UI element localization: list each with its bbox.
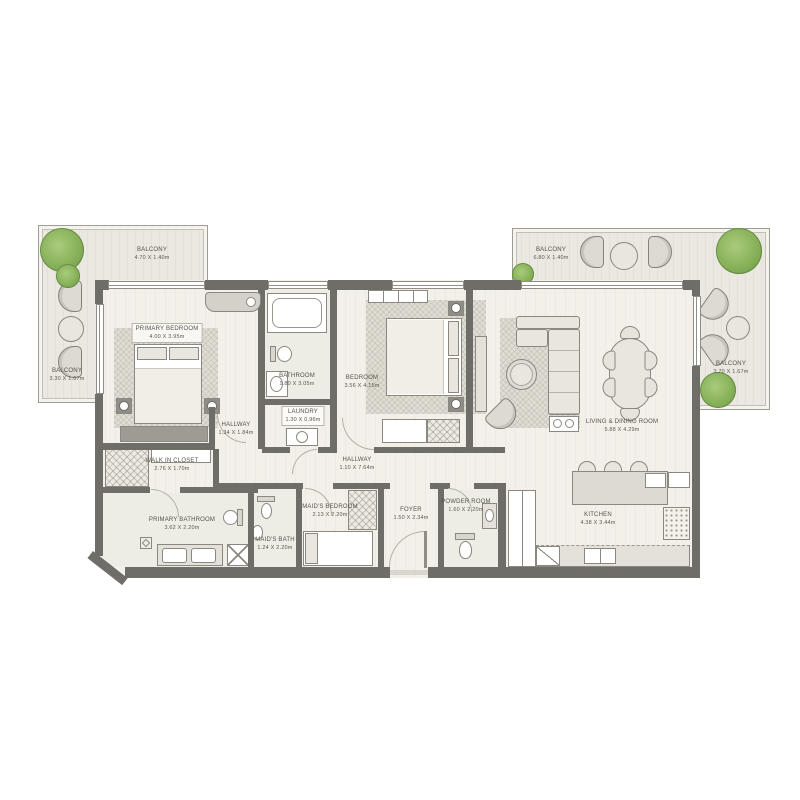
toilet-tank	[257, 496, 275, 502]
console-table	[475, 336, 487, 412]
toilet-icon	[277, 346, 292, 362]
wall	[213, 449, 219, 487]
wall-oven	[668, 472, 690, 488]
plant-icon	[553, 419, 562, 428]
sofa-icon	[548, 329, 580, 415]
room-label-walk-in-closet: WALK IN CLOSET2.76 X 1.70m	[146, 457, 199, 473]
window	[108, 281, 205, 289]
pillow	[448, 358, 459, 393]
dresser	[382, 419, 427, 443]
pillow	[169, 347, 199, 360]
room-label-maids-bedroom: MAID'S BEDROOM2.13 X 2.20m	[302, 503, 358, 519]
toilet-tank	[455, 533, 475, 540]
decor-icon	[246, 297, 256, 307]
wall	[692, 282, 700, 296]
room-label-balcony-left-top: BALCONY4.70 X 1.40m	[134, 246, 169, 262]
room-label-primary-bathroom: PRIMARY BATHROOM3.62 X 2.20m	[149, 516, 215, 532]
room-label-primary-bedroom: PRIMARY BEDROOM4.00 X 3.95m	[132, 323, 203, 343]
room-label-balcony-left-side: BALCONY3.30 X 1.67m	[49, 367, 84, 383]
wall	[296, 489, 302, 567]
wall	[466, 289, 473, 447]
wall	[258, 399, 337, 405]
wall	[318, 447, 336, 453]
room-label-powder-room: POWDER ROOM1.60 X 2.20m	[441, 498, 491, 514]
balcony-table-icon	[610, 242, 638, 270]
island-sink	[645, 473, 666, 488]
wardrobe	[368, 290, 428, 303]
pillow	[137, 347, 167, 360]
dining-chair-icon	[620, 326, 640, 339]
window	[392, 281, 464, 289]
dining-chair-icon	[603, 378, 616, 398]
room-label-balcony-right-top: BALCONY6.80 X 1.40m	[533, 246, 568, 262]
toilet-icon	[261, 503, 272, 519]
sink-icon	[191, 548, 216, 563]
tree-icon	[716, 228, 762, 274]
window	[268, 281, 328, 289]
pillow	[448, 321, 459, 356]
toilet-icon	[223, 510, 238, 525]
wall	[378, 483, 384, 567]
wall	[692, 366, 700, 578]
room-label-hallway-main: HALLWAY1.10 X 7.64m	[339, 456, 374, 472]
room-label-maids-bath: MAID'S BATH1.24 X 2.20m	[255, 536, 295, 552]
tree-icon	[56, 264, 80, 288]
blanket	[387, 320, 444, 394]
wall	[328, 280, 392, 290]
bathtub-inner	[272, 298, 322, 328]
wardrobe	[105, 449, 149, 487]
balcony-table-icon	[58, 316, 84, 342]
toilet-tank	[270, 346, 276, 362]
toilet-icon	[459, 541, 472, 559]
wall	[125, 567, 390, 578]
room-label-living-dining: LIVING & DINING ROOM5.88 X 4.29m	[586, 418, 658, 434]
wall	[95, 394, 103, 556]
entrance-door	[424, 531, 427, 568]
dresser	[427, 419, 460, 443]
coffee-table-icon	[506, 359, 537, 390]
room-label-balcony-right-side: BALCONY3.70 X 1.67m	[713, 360, 748, 376]
lamp-icon	[451, 303, 461, 313]
wall	[103, 443, 209, 450]
balcony-chair-icon	[580, 236, 604, 268]
wall	[248, 489, 254, 567]
sofa-icon	[516, 316, 580, 329]
window	[693, 296, 701, 366]
plant-icon	[565, 419, 574, 428]
wall	[95, 288, 103, 304]
window	[521, 281, 683, 289]
balcony-table-icon	[726, 316, 750, 340]
dining-chair-icon	[603, 351, 616, 371]
room-label-bedroom: BEDROOM3.56 X 4.15m	[344, 374, 379, 390]
sink-icon	[162, 548, 187, 563]
tree-icon	[700, 372, 736, 408]
lamp-icon	[119, 401, 129, 411]
sofa-icon	[516, 329, 548, 347]
window	[96, 304, 104, 394]
room-label-kitchen: KITCHEN4.38 X 3.44m	[580, 511, 615, 527]
kitchen-sink-icon	[584, 548, 616, 564]
room-label-bathroom: BATHROOM1.80 X 3.05m	[279, 372, 315, 388]
pantry-cabinet	[508, 490, 536, 567]
wall	[262, 447, 290, 453]
dining-table-icon	[609, 338, 651, 410]
wall	[103, 487, 150, 493]
apartment-floor-plan: PRIMARY BEDROOM4.00 X 3.95m HALLWAY1.34 …	[0, 0, 800, 800]
wall	[428, 567, 700, 578]
lamp-icon	[451, 399, 461, 409]
corner-cabinet	[536, 546, 560, 566]
wall	[258, 415, 265, 449]
counter-texture	[663, 507, 690, 540]
blanket	[135, 368, 201, 423]
room-label-hallway-primary: HALLWAY1.34 X 1.84m	[218, 421, 253, 437]
room-label-laundry: LAUNDRY1.30 X 0.96m	[281, 406, 324, 426]
wall	[209, 407, 215, 450]
bed-bench	[120, 426, 208, 442]
entrance-threshold	[390, 570, 428, 575]
wall	[180, 487, 258, 493]
washer-drum-icon	[296, 431, 308, 443]
wall	[330, 289, 337, 453]
shower	[227, 544, 249, 566]
room-label-foyer: FOYER1.50 X 2.34m	[393, 506, 428, 522]
wall	[498, 483, 506, 567]
pillow	[305, 533, 318, 564]
wall	[374, 447, 505, 453]
